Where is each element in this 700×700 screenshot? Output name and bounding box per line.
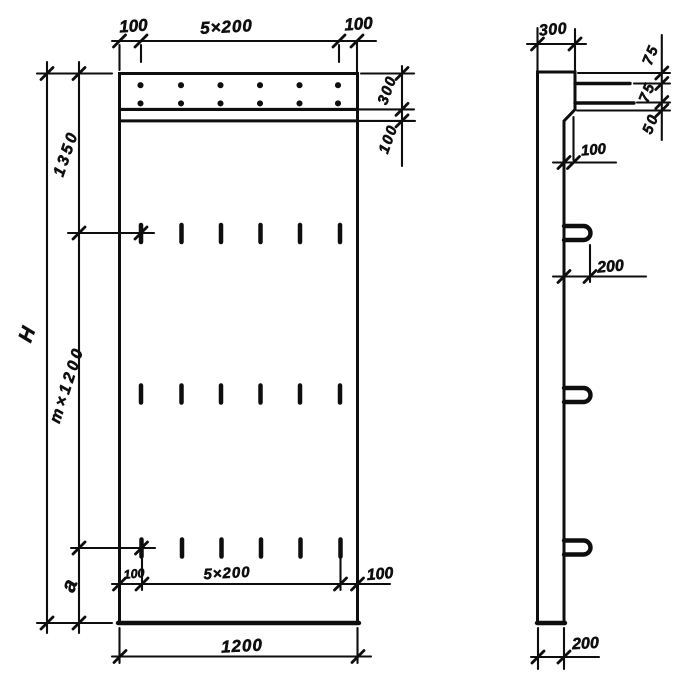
svg-text:100: 100	[366, 565, 394, 584]
svg-text:100: 100	[375, 122, 401, 156]
svg-text:300: 300	[374, 73, 400, 107]
svg-text:100: 100	[123, 566, 145, 582]
svg-text:100: 100	[580, 140, 607, 159]
svg-text:5×200: 5×200	[200, 16, 254, 38]
svg-text:200: 200	[596, 257, 625, 276]
svg-text:75: 75	[639, 42, 663, 68]
svg-text:1200: 1200	[221, 635, 264, 656]
svg-text:H: H	[15, 324, 41, 346]
svg-text:100: 100	[119, 15, 149, 36]
svg-text:100: 100	[344, 13, 374, 34]
svg-text:5×200: 5×200	[203, 564, 251, 583]
svg-text:200: 200	[571, 635, 600, 653]
svg-text:1350: 1350	[51, 128, 83, 179]
svg-text:300: 300	[538, 20, 568, 39]
svg-text:m×1200: m×1200	[47, 344, 88, 426]
